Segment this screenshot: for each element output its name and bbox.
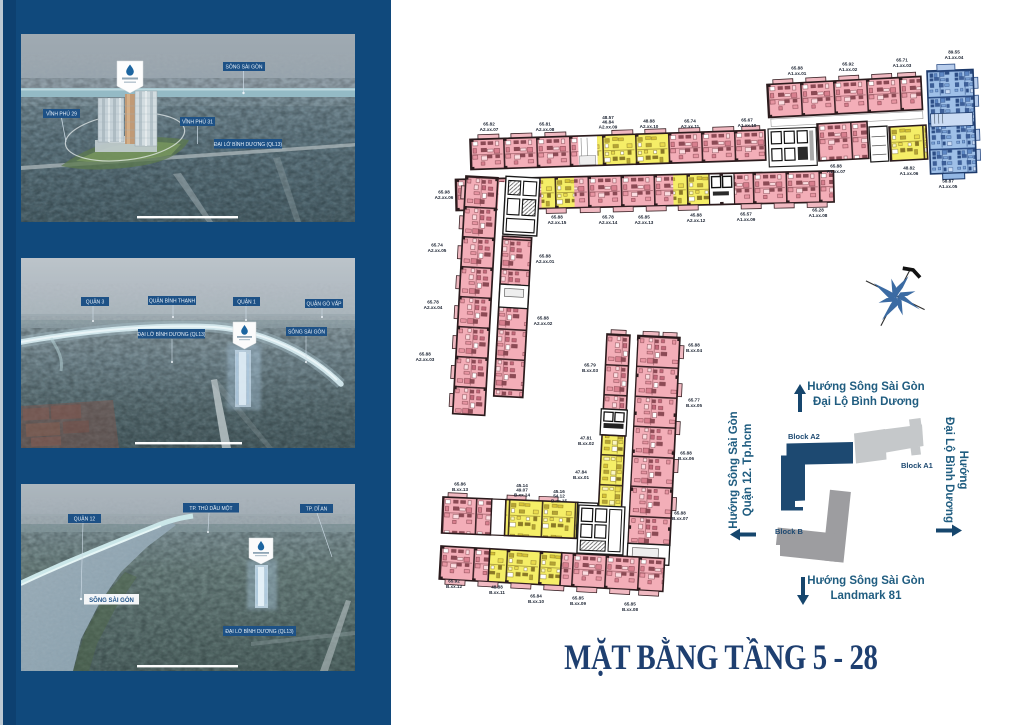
svg-text:65.98: 65.98 bbox=[438, 190, 450, 195]
svg-text:A2.xx.13: A2.xx.13 bbox=[635, 220, 654, 225]
svg-text:B.xx.02: B.xx.02 bbox=[578, 441, 595, 446]
svg-text:A1.xx.03: A1.xx.03 bbox=[893, 63, 912, 68]
svg-text:65.67: 65.67 bbox=[741, 118, 753, 123]
svg-text:A1.xx.02: A1.xx.02 bbox=[839, 67, 858, 72]
svg-text:B.xx.03: B.xx.03 bbox=[582, 368, 599, 373]
svg-text:45.88: 45.88 bbox=[690, 213, 702, 218]
svg-text:QUẬN BÌNH THẠNH: QUẬN BÌNH THẠNH bbox=[149, 298, 196, 305]
svg-text:A2.xx.03: A2.xx.03 bbox=[416, 357, 435, 362]
svg-text:A1.xx.01: A1.xx.01 bbox=[788, 71, 807, 76]
svg-text:48.82: 48.82 bbox=[903, 166, 915, 171]
svg-text:B.xx.12: B.xx.12 bbox=[446, 584, 463, 589]
svg-text:A1.xx.08: A1.xx.08 bbox=[809, 213, 828, 218]
svg-text:A1.xx.09: A1.xx.09 bbox=[737, 217, 756, 222]
svg-text:QUẬN 12: QUẬN 12 bbox=[74, 516, 96, 523]
svg-text:65.85: 65.85 bbox=[624, 602, 636, 607]
svg-text:A2.xx.09: A2.xx.09 bbox=[599, 125, 618, 130]
svg-text:65.84: 65.84 bbox=[530, 594, 542, 599]
svg-text:65.92: 65.92 bbox=[842, 62, 854, 67]
svg-text:65.85: 65.85 bbox=[638, 215, 650, 220]
svg-text:SÔNG SÀI GÒN: SÔNG SÀI GÒN bbox=[288, 329, 325, 336]
svg-text:A2.xx.05: A2.xx.05 bbox=[428, 248, 447, 253]
svg-text:65.92: 65.92 bbox=[448, 579, 460, 584]
svg-text:ĐẠI LỚ BÌNH DƯƠNG (QL13): ĐẠI LỚ BÌNH DƯƠNG (QL13) bbox=[225, 628, 293, 635]
svg-text:65.88: 65.88 bbox=[680, 451, 692, 456]
svg-text:65.88: 65.88 bbox=[551, 215, 563, 220]
svg-text:A1.xx.07: A1.xx.07 bbox=[827, 169, 846, 174]
svg-text:A2.xx.15: A2.xx.15 bbox=[548, 220, 567, 225]
svg-text:A1.xx.05: A1.xx.05 bbox=[939, 184, 958, 189]
svg-text:65.74: 65.74 bbox=[431, 243, 443, 248]
svg-text:A2.xx.11: A2.xx.11 bbox=[681, 124, 700, 129]
svg-text:SÔNG SÀI GÒN: SÔNG SÀI GÒN bbox=[89, 596, 134, 604]
svg-text:TP. THỦ DẦU MỘT: TP. THỦ DẦU MỘT bbox=[189, 505, 232, 512]
svg-text:ĐẠI LỚ BÌNH DƯƠNG (QL13): ĐẠI LỚ BÌNH DƯƠNG (QL13) bbox=[214, 141, 282, 148]
svg-text:B.xx.14: B.xx.14 bbox=[514, 493, 531, 498]
svg-text:65.28: 65.28 bbox=[812, 208, 824, 213]
svg-text:47.81: 47.81 bbox=[580, 436, 592, 441]
svg-text:65.86: 65.86 bbox=[454, 482, 466, 487]
svg-text:B.xx.11: B.xx.11 bbox=[489, 590, 505, 595]
svg-text:65.88: 65.88 bbox=[539, 254, 551, 259]
svg-text:65.85: 65.85 bbox=[572, 596, 584, 601]
svg-text:SÔNG SÀI GÒN: SÔNG SÀI GÒN bbox=[226, 64, 263, 71]
svg-text:48.88: 48.88 bbox=[491, 585, 503, 590]
svg-text:A2.xx.02: A2.xx.02 bbox=[534, 321, 553, 326]
svg-text:48.88: 48.88 bbox=[643, 119, 655, 124]
svg-text:A2.xx.01: A2.xx.01 bbox=[536, 259, 555, 264]
svg-text:QUẬN 3: QUẬN 3 bbox=[86, 299, 105, 306]
svg-text:B.xx.15: B.xx.15 bbox=[551, 499, 568, 504]
svg-text:65.88: 65.88 bbox=[674, 511, 686, 516]
svg-text:A1.xx.04: A1.xx.04 bbox=[945, 55, 964, 60]
svg-text:A2.xx.14: A2.xx.14 bbox=[599, 220, 618, 225]
svg-text:Block A1: Block A1 bbox=[901, 461, 933, 470]
svg-text:65.88: 65.88 bbox=[537, 316, 549, 321]
svg-text:VĨNH PHÚ 31: VĨNH PHÚ 31 bbox=[182, 119, 213, 126]
svg-text:A2.xx.04: A2.xx.04 bbox=[424, 305, 443, 310]
svg-text:89.55: 89.55 bbox=[948, 50, 960, 55]
svg-text:B.xx.05: B.xx.05 bbox=[686, 403, 703, 408]
svg-text:47.84: 47.84 bbox=[575, 470, 587, 475]
svg-text:Block B: Block B bbox=[775, 527, 804, 536]
svg-text:65.78: 65.78 bbox=[427, 300, 439, 305]
svg-text:65.71: 65.71 bbox=[896, 58, 908, 63]
svg-text:A2.xx.06: A2.xx.06 bbox=[435, 195, 454, 200]
svg-text:B.xx.10: B.xx.10 bbox=[528, 599, 545, 604]
svg-text:65.88: 65.88 bbox=[419, 352, 431, 357]
svg-text:58.87: 58.87 bbox=[942, 179, 954, 184]
svg-text:VĨNH PHÚ 29: VĨNH PHÚ 29 bbox=[46, 111, 77, 118]
svg-text:A2.xx.07: A2.xx.07 bbox=[480, 127, 499, 132]
svg-text:65.88: 65.88 bbox=[688, 343, 700, 348]
svg-text:B.xx.09: B.xx.09 bbox=[570, 601, 587, 606]
svg-text:A2.xx.08: A2.xx.08 bbox=[536, 127, 555, 132]
svg-text:65.57: 65.57 bbox=[740, 212, 752, 217]
svg-text:65.78: 65.78 bbox=[602, 215, 614, 220]
svg-text:QUẬN 1: QUẬN 1 bbox=[237, 299, 256, 306]
svg-text:B.xx.07: B.xx.07 bbox=[672, 516, 689, 521]
svg-text:65.81: 65.81 bbox=[539, 122, 551, 127]
svg-text:65.88: 65.88 bbox=[830, 164, 842, 169]
svg-text:B.xx.04: B.xx.04 bbox=[686, 348, 703, 353]
svg-text:ĐẠI LỚ BÌNH DƯƠNG (QL13): ĐẠI LỚ BÌNH DƯƠNG (QL13) bbox=[137, 331, 205, 338]
svg-text:Block A2: Block A2 bbox=[788, 432, 820, 441]
svg-text:B.xx.13: B.xx.13 bbox=[452, 487, 469, 492]
svg-text:65.79: 65.79 bbox=[584, 363, 596, 368]
svg-text:QUẬN GÒ VẤP: QUẬN GÒ VẤP bbox=[306, 301, 342, 308]
svg-text:65.82: 65.82 bbox=[483, 122, 495, 127]
svg-text:B.xx.08: B.xx.08 bbox=[622, 607, 639, 612]
svg-text:TP. DĨ AN: TP. DĨ AN bbox=[306, 506, 328, 513]
svg-text:A2.xx.10: A2.xx.10 bbox=[640, 124, 659, 129]
svg-text:65.88: 65.88 bbox=[791, 66, 803, 71]
svg-text:B.xx.01: B.xx.01 bbox=[573, 475, 590, 480]
svg-text:A2.xx.12: A2.xx.12 bbox=[687, 218, 706, 223]
svg-text:65.74: 65.74 bbox=[684, 119, 696, 124]
svg-text:B.xx.06: B.xx.06 bbox=[678, 456, 695, 461]
svg-text:A1.xx.06: A1.xx.06 bbox=[900, 171, 919, 176]
svg-text:A1.xx.10: A1.xx.10 bbox=[738, 123, 757, 128]
svg-text:65.77: 65.77 bbox=[688, 398, 700, 403]
